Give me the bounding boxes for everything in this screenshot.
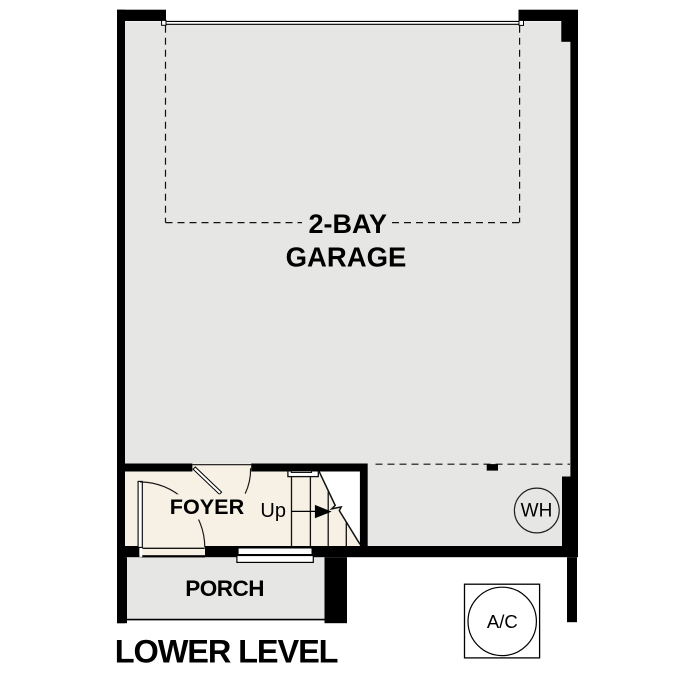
svg-text:LOWER LEVEL: LOWER LEVEL xyxy=(115,634,338,670)
svg-text:2-BAY: 2-BAY xyxy=(309,209,388,239)
svg-text:PORCH: PORCH xyxy=(185,576,264,601)
svg-text:FOYER: FOYER xyxy=(170,494,245,519)
svg-text:A/C: A/C xyxy=(487,611,518,632)
svg-text:WH: WH xyxy=(521,500,553,521)
svg-text:GARAGE: GARAGE xyxy=(286,242,407,273)
svg-text:Up: Up xyxy=(260,500,286,522)
